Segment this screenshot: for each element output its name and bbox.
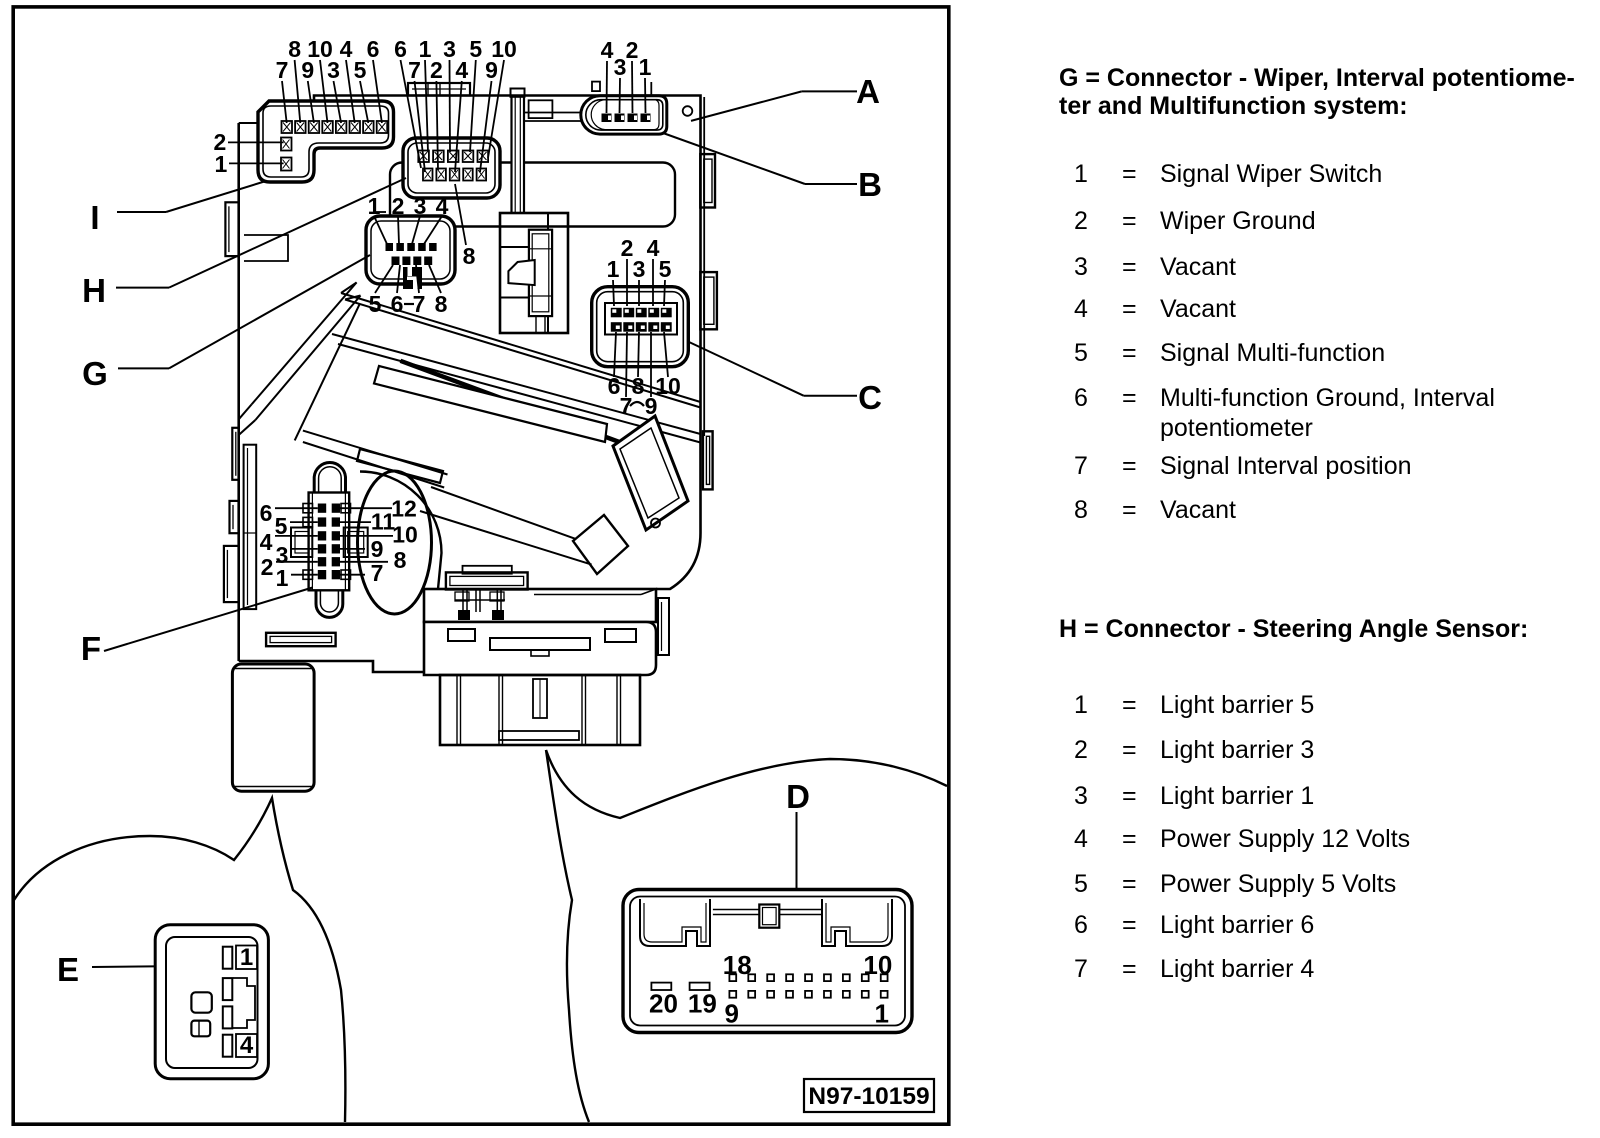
svg-text:1: 1 xyxy=(875,999,889,1029)
svg-text:5: 5 xyxy=(659,256,672,282)
svg-text:H: H xyxy=(82,272,106,309)
svg-text:2: 2 xyxy=(621,235,634,261)
svg-text:4: 4 xyxy=(240,1032,254,1059)
svg-text:4: 4 xyxy=(455,57,468,83)
svg-text:G: G xyxy=(82,355,108,392)
svg-text:B: B xyxy=(858,166,882,203)
svg-text:I: I xyxy=(90,199,99,236)
svg-text:F: F xyxy=(81,630,101,667)
svg-text:5: 5 xyxy=(469,36,482,62)
svg-text:A: A xyxy=(856,73,880,110)
svg-text:N97-10159: N97-10159 xyxy=(808,1083,929,1110)
svg-text:8: 8 xyxy=(394,547,407,573)
svg-text:1: 1 xyxy=(639,54,652,80)
svg-text:5: 5 xyxy=(354,57,367,83)
svg-text:3: 3 xyxy=(327,57,340,83)
svg-text:6: 6 xyxy=(367,36,380,62)
svg-text:3: 3 xyxy=(614,54,627,80)
svg-text:19: 19 xyxy=(688,989,717,1019)
svg-text:4: 4 xyxy=(436,193,449,219)
svg-text:4: 4 xyxy=(340,36,353,62)
svg-text:1: 1 xyxy=(368,193,381,219)
svg-text:C: C xyxy=(858,379,882,416)
svg-text:D: D xyxy=(786,778,810,815)
svg-text:2: 2 xyxy=(626,37,639,63)
svg-text:10: 10 xyxy=(392,521,418,547)
svg-text:3: 3 xyxy=(414,193,427,219)
svg-text:1: 1 xyxy=(240,944,253,971)
svg-text:4: 4 xyxy=(260,529,273,555)
svg-text:7: 7 xyxy=(276,57,289,83)
svg-text:7: 7 xyxy=(413,291,426,317)
svg-text:2: 2 xyxy=(392,193,405,219)
svg-text:8: 8 xyxy=(463,243,476,269)
svg-text:4: 4 xyxy=(601,37,614,63)
svg-text:1: 1 xyxy=(607,256,620,282)
svg-text:7: 7 xyxy=(371,560,384,586)
svg-text:8: 8 xyxy=(435,291,448,317)
svg-text:6: 6 xyxy=(260,500,273,526)
svg-text:9: 9 xyxy=(725,999,739,1029)
svg-text:1: 1 xyxy=(276,565,289,591)
svg-text:9: 9 xyxy=(371,536,384,562)
svg-text:20: 20 xyxy=(649,989,678,1019)
svg-text:10: 10 xyxy=(863,950,892,980)
svg-text:6: 6 xyxy=(394,36,407,62)
svg-text:2: 2 xyxy=(430,57,443,83)
svg-text:10: 10 xyxy=(491,36,517,62)
svg-text:E: E xyxy=(57,951,79,988)
svg-text:3: 3 xyxy=(443,36,456,62)
svg-text:2: 2 xyxy=(261,554,274,580)
svg-text:3: 3 xyxy=(633,256,646,282)
svg-text:1: 1 xyxy=(215,151,228,177)
svg-text:18: 18 xyxy=(723,950,752,980)
svg-text:8: 8 xyxy=(288,36,301,62)
